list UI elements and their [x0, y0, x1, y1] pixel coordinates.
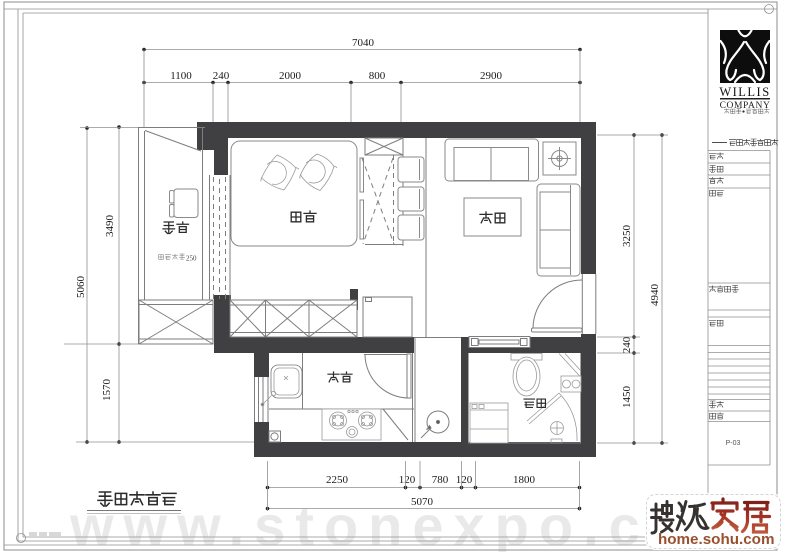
svg-text:home.sohu.com: home.sohu.com [658, 531, 774, 548]
svg-text:1100: 1100 [170, 70, 192, 82]
svg-text:1570: 1570 [101, 379, 113, 402]
svg-text:3250: 3250 [621, 225, 633, 248]
svg-text:1450: 1450 [621, 386, 633, 409]
svg-text:250: 250 [186, 255, 197, 263]
svg-text:240: 240 [213, 70, 230, 82]
svg-text:240: 240 [621, 336, 633, 353]
svg-text:2000: 2000 [279, 70, 302, 82]
svg-text:2250: 2250 [326, 474, 349, 486]
svg-text:7040: 7040 [352, 37, 375, 49]
svg-text:5070: 5070 [411, 496, 434, 508]
svg-text:3490: 3490 [104, 215, 116, 238]
svg-text:800: 800 [369, 70, 386, 82]
svg-text:120: 120 [399, 474, 416, 486]
svg-text:4940: 4940 [649, 284, 661, 307]
svg-text:1800: 1800 [513, 474, 536, 486]
svg-text:5060: 5060 [75, 276, 87, 299]
svg-text:www.stonexpo.co: www.stonexpo.co [69, 494, 694, 552]
svg-text:WILLIS: WILLIS [719, 85, 770, 99]
svg-text:2900: 2900 [480, 70, 503, 82]
svg-text:120: 120 [456, 474, 473, 486]
svg-text:780: 780 [432, 474, 449, 486]
svg-text:P-03: P-03 [726, 440, 741, 447]
